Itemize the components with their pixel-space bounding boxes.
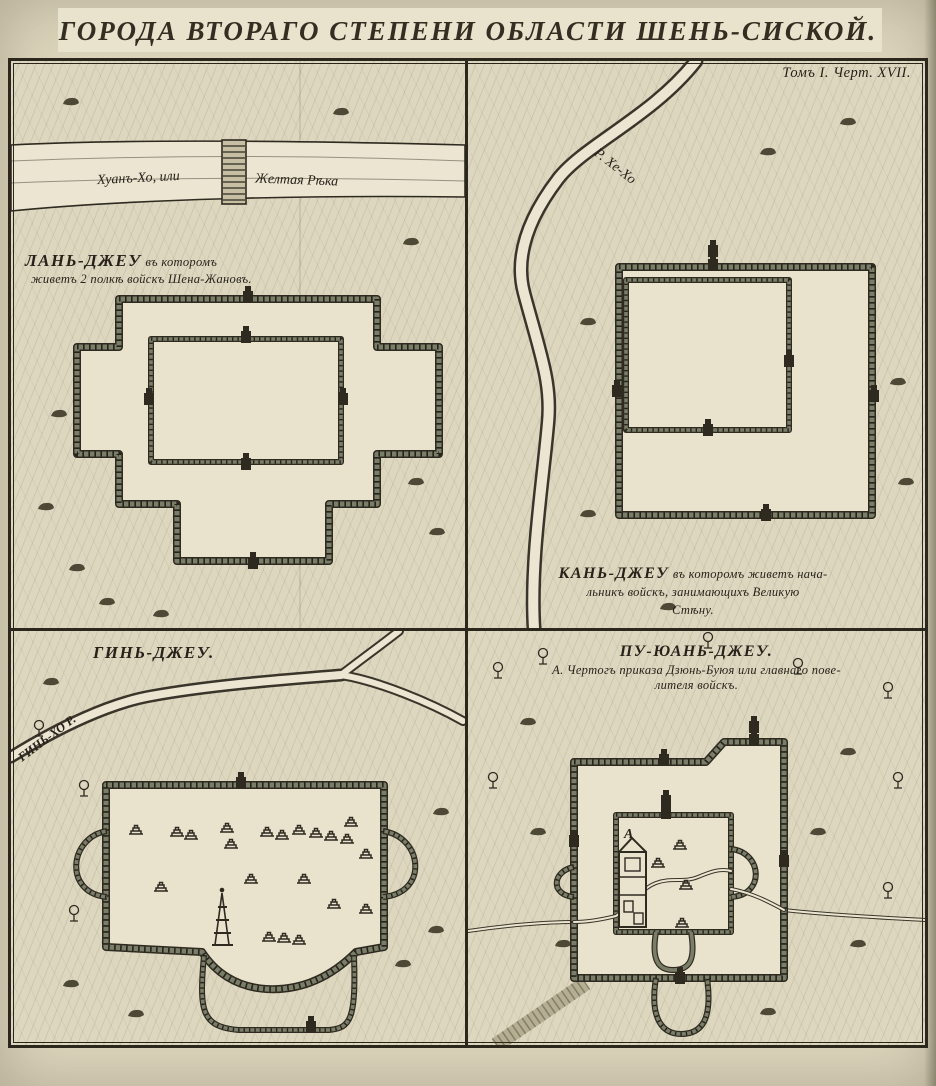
yellow-river-label-right: Желтая Рѣка (255, 172, 339, 191)
pu-yuan-dzheu-plan-drawing (468, 631, 925, 1045)
kan-dzheu-plan-drawing (468, 61, 925, 628)
panel-gin-dzheu: ГИНЬ-ДЖЕУ. ГИНЬ-ХО Р. (11, 631, 465, 1045)
pu-yuan-caption-line2: лителя войскъ. (474, 678, 919, 693)
plate-frame: ЛАНЬ-ДЖЕУ въ которомъ живетъ 2 полкѣ вой… (8, 58, 928, 1048)
gin-dzheu-title: ГИНЬ-ДЖЕУ. (93, 643, 215, 663)
pu-yuan-dzheu-title: ПУ-ЮАНЬ-ДЖЕУ. (468, 643, 925, 661)
plate-reference: Томъ I. Черт. XVII. (782, 65, 911, 82)
panel-kan-dzheu: Томъ I. Черт. XVII. Р. Хе-Хо КАНЬ-ДЖЕУ в… (468, 61, 925, 628)
kan-dzheu-caption: КАНЬ-ДЖЕУ въ которомъ живетъ нача- льник… (478, 565, 908, 619)
kan-dzheu-name: КАНЬ-ДЖЕУ (559, 565, 669, 582)
lan-dzheu-caption: живетъ 2 полкѣ войскъ Шена-Жановъ. (31, 272, 252, 287)
lan-dzheu-plan-drawing (11, 61, 465, 628)
gin-dzheu-plan-drawing (11, 631, 465, 1045)
lan-dzheu-name-note: въ которомъ (146, 255, 218, 269)
panel-lan-dzheu: ЛАНЬ-ДЖЕУ въ которомъ живетъ 2 полкѣ вой… (11, 61, 465, 628)
engraved-plate-page: ГОРОДА ВТОРАГО СТЕПЕНИ ОБЛАСТИ ШЕНЬ-СИСК… (0, 0, 936, 1086)
marker-a-label: А (624, 827, 633, 843)
panel-pu-yuan-dzheu: ПУ-ЮАНЬ-ДЖЕУ. А. Чертогъ приказа Дзюнь-Б… (468, 631, 925, 1045)
lan-dzheu-label: ЛАНЬ-ДЖЕУ въ которомъ (25, 251, 217, 271)
lan-dzheu-name: ЛАНЬ-ДЖЕУ (25, 251, 142, 270)
panel-divider-vertical (465, 61, 468, 1045)
pu-yuan-caption-line1: А. Чертогъ приказа Дзюнь-Буюя или главна… (474, 663, 919, 678)
page-title: ГОРОДА ВТОРАГО СТЕПЕНИ ОБЛАСТИ ШЕНЬ-СИСК… (0, 16, 936, 47)
panel-divider-horizontal (11, 628, 925, 631)
